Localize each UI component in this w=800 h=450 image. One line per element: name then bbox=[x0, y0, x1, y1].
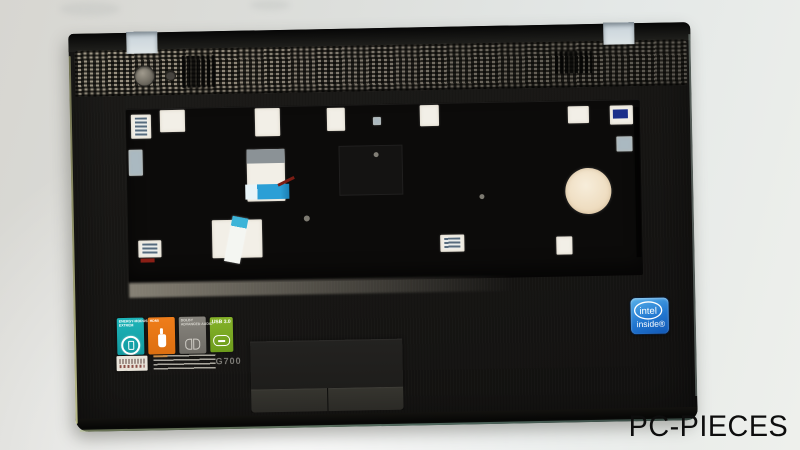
dolby-icon bbox=[185, 338, 200, 349]
intel-inside-logo: intel inside® bbox=[630, 298, 669, 335]
large-round-cutout bbox=[565, 168, 612, 215]
screw-hole bbox=[304, 215, 310, 221]
intel-brand-text: intel bbox=[639, 306, 657, 317]
intel-inside-badge: intel inside® bbox=[630, 298, 669, 335]
raised-panel-outline bbox=[338, 145, 403, 196]
battery-glyph bbox=[128, 341, 134, 350]
left-edge-highlight bbox=[69, 56, 78, 424]
barcode-lines bbox=[119, 359, 144, 364]
background-smudge bbox=[250, 0, 290, 10]
keyboard-cutout bbox=[160, 110, 185, 132]
latch-clip bbox=[444, 238, 460, 249]
sticker-text: HDMI bbox=[150, 319, 173, 323]
usb-plug-icon bbox=[213, 335, 230, 346]
touchpad bbox=[250, 339, 403, 390]
latch-clip bbox=[142, 243, 157, 254]
keyboard-cutout bbox=[373, 117, 381, 125]
barcode-label bbox=[116, 356, 147, 372]
blue-mini-label bbox=[613, 109, 628, 118]
keyboard-cutout bbox=[616, 136, 632, 151]
sticker-text: DOLBYADVANCED AUDIO bbox=[181, 318, 204, 326]
keyboard-latch-cutout bbox=[440, 234, 464, 251]
laptop-palmrest-cover: ENERGY-MODUSEXTREM HDMI DOLBYADVANCED AU… bbox=[68, 22, 698, 432]
touchpad-buttons bbox=[251, 387, 403, 413]
latch-clip bbox=[135, 118, 147, 136]
hinge-notch-right bbox=[603, 22, 634, 45]
regulatory-fine-print bbox=[153, 354, 215, 371]
keyboard-cutout bbox=[610, 105, 633, 124]
keyboard-latch-cutout bbox=[138, 240, 161, 257]
usb3-sticker: USB 3.0 bbox=[210, 317, 234, 352]
hinge-notch-left bbox=[126, 31, 157, 54]
keyboard-opening bbox=[126, 99, 643, 285]
ribbon-cable-blue bbox=[245, 184, 289, 200]
keyboard-cutout bbox=[556, 236, 572, 254]
keyboard-cutout bbox=[568, 106, 589, 123]
hdmi-sticker: HDMI bbox=[148, 317, 176, 355]
sticker-cluster: ENERGY-MODUSEXTREM HDMI DOLBYADVANCED AU… bbox=[117, 316, 234, 355]
cutout-shadow bbox=[246, 149, 284, 164]
screw-hole bbox=[479, 194, 484, 199]
red-tape-mark bbox=[141, 258, 155, 262]
touchpad-button-left bbox=[251, 388, 327, 412]
keyboard-cutout bbox=[255, 108, 281, 136]
watermark-text: PC-PIECES bbox=[628, 410, 788, 444]
grille-dark-patch bbox=[555, 51, 592, 74]
photo-background: ENERGY-MODUSEXTREM HDMI DOLBYADVANCED AU… bbox=[0, 0, 800, 450]
hdmi-cable-icon bbox=[158, 334, 166, 347]
side-wall-notch bbox=[128, 150, 142, 176]
grille-dark-patch bbox=[182, 55, 216, 88]
dolby-audio-sticker: DOLBYADVANCED AUDIO bbox=[179, 316, 207, 354]
sticker-text: ENERGY-MODUSEXTREM bbox=[119, 320, 142, 328]
touchpad-button-right bbox=[328, 387, 404, 411]
model-label: G700 bbox=[215, 356, 241, 366]
keyboard-latch-cutout bbox=[131, 114, 151, 138]
energy-management-sticker: ENERGY-MODUSEXTREM bbox=[117, 318, 145, 356]
battery-circle-icon bbox=[121, 336, 140, 355]
barcode-subtext bbox=[120, 365, 145, 368]
right-edge-highlight bbox=[688, 34, 697, 396]
side-wall-slot bbox=[634, 107, 642, 257]
keyboard-cutout bbox=[420, 105, 439, 126]
intel-tagline-text: inside® bbox=[637, 319, 666, 330]
sticker-text: USB 3.0 bbox=[212, 319, 231, 325]
background-smudge bbox=[60, 2, 120, 16]
keyboard-cutout bbox=[327, 108, 345, 131]
